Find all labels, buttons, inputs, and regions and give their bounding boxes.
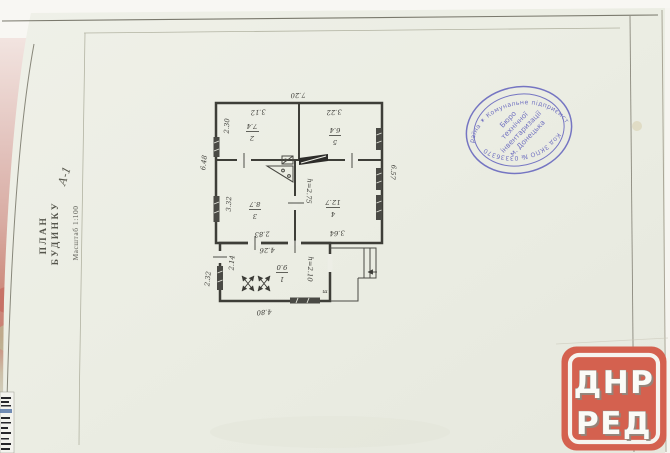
paper-shading xyxy=(210,416,450,448)
dim-room3-width: 2.83 xyxy=(254,229,271,238)
watermark-logo: ДНР РЕД ДНР РЕД xyxy=(562,347,667,451)
room1-area: 9.0 xyxy=(276,263,287,271)
room5-area: 6.4 xyxy=(330,126,341,134)
tap-mark: т xyxy=(322,288,327,294)
barcode-fragment xyxy=(0,392,14,453)
document-canvas: ПЛАН БУДИНКУ А-1 Масштаб 1:100 xyxy=(0,0,670,453)
photo-of-floorplan-document: ПЛАН БУДИНКУ А-1 Масштаб 1:100 xyxy=(0,0,670,453)
dim-annex-inner-depth: 2.14 xyxy=(227,255,236,272)
plan-title-line2: БУДИНКУ xyxy=(51,201,61,265)
plan-title-line1: ПЛАН xyxy=(39,216,49,255)
room5-number: 5 xyxy=(333,138,337,146)
room4-area: 12.7 xyxy=(325,198,341,206)
watermark-line1: ДНР xyxy=(574,365,655,401)
dim-annex-outer-depth: 2.32 xyxy=(203,271,213,288)
dim-right-height: 6.57 xyxy=(388,164,397,180)
room4-number: 4 xyxy=(331,210,336,218)
height-note-room1: h=2.10 xyxy=(306,256,315,282)
room2-area: 7.4 xyxy=(247,122,258,130)
room2-number: 2 xyxy=(250,134,255,142)
dim-annex-top-width: 4.26 xyxy=(259,246,276,255)
watermark-line2: РЕД xyxy=(576,406,652,442)
scale-note: Масштаб 1:100 xyxy=(71,205,80,260)
dim-room4-width: 3.64 xyxy=(329,229,345,238)
dim-room2-width: 3.12 xyxy=(250,107,266,116)
dim-room3-depth: 3.32 xyxy=(225,196,234,211)
room3-number: 3 xyxy=(253,212,257,220)
height-note-room4: h=2.75 xyxy=(304,178,313,204)
dim-top-width: 7.20 xyxy=(290,91,306,100)
dim-room2-depth: 2.30 xyxy=(223,117,232,134)
room3-area: 8.7 xyxy=(249,200,260,208)
dim-room5-width: 3.22 xyxy=(326,108,342,117)
room1-number: 1 xyxy=(280,275,284,283)
paper-stain xyxy=(632,121,642,131)
dim-annex-bottom-width: 4.80 xyxy=(256,307,273,316)
